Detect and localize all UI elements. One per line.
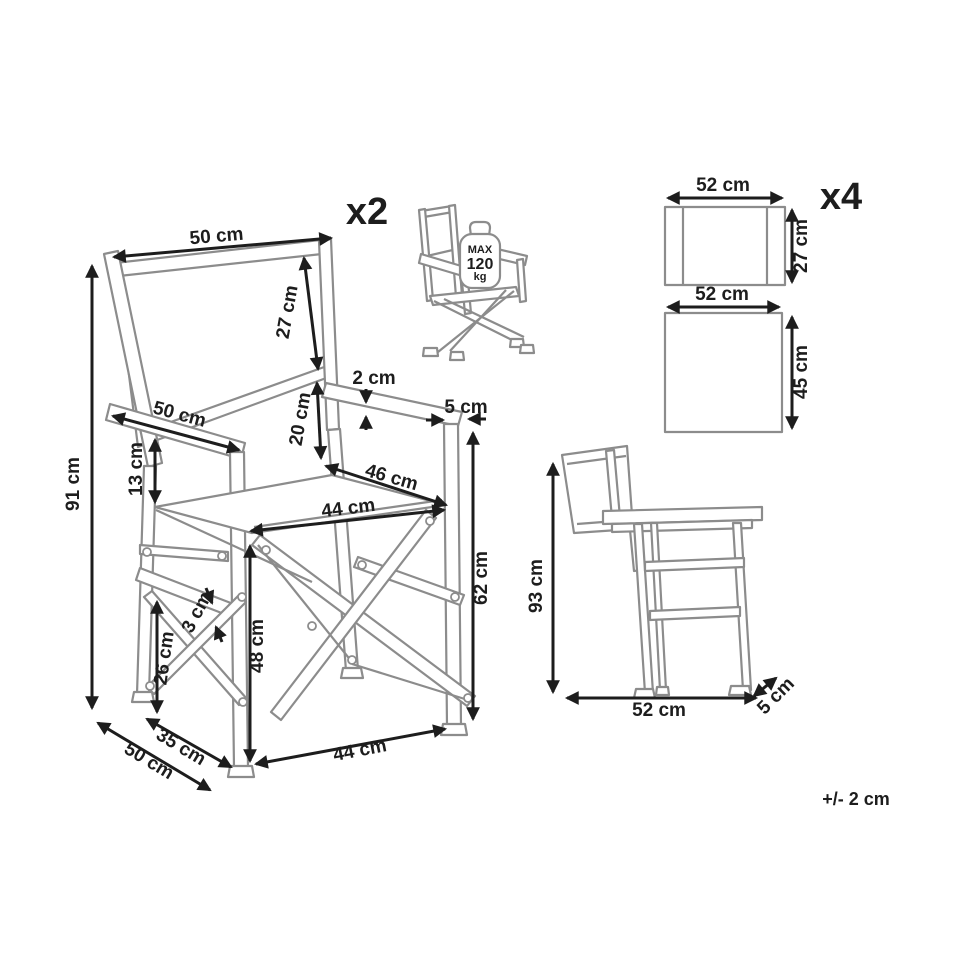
rivet-icon (348, 656, 356, 664)
dim-label: 52 cm (695, 284, 749, 305)
folded-foot (520, 345, 534, 353)
side-stretcher-lower (650, 607, 740, 620)
dim-front-leg-span: 44 cm (256, 729, 445, 766)
fabric-panels-drawing (665, 207, 785, 432)
dim-seat-height: 48 cm (247, 546, 268, 761)
side-front-foot-b (656, 687, 669, 695)
dim-label: 91 cm (63, 457, 84, 511)
max-load-label: MAX (468, 244, 493, 256)
dim-label: 27 cm (791, 219, 812, 273)
dim-seat-panel-width: 52 cm (668, 284, 779, 307)
rivet-icon (426, 517, 434, 525)
dim-side-frame-thickness: 5 cm (753, 673, 798, 718)
side-view-group: 93 cm 52 cm 5 cm (526, 446, 799, 721)
side-front-leg-a (634, 524, 653, 693)
dim-side-total-height: 93 cm (526, 464, 553, 692)
dim-label: 5 cm (444, 397, 487, 418)
chair-dimension-diagram: 50 cm 27 cm 2 cm 5 cm 20 cm 46 cm 44 cm (0, 0, 960, 960)
rivet-icon (451, 593, 459, 601)
dim-label: 2 cm (352, 368, 395, 389)
dim-label: 48 cm (247, 619, 268, 673)
side-rear-foot (729, 686, 751, 695)
dim-armrest-floor-height: 62 cm (471, 433, 492, 719)
folded-cross-strut (444, 299, 524, 337)
side-view-chair-drawing (562, 446, 762, 698)
fabric-panels-quantity: x4 (820, 176, 862, 218)
dim-total-height: 91 cm (63, 266, 92, 708)
folded-foot (423, 348, 438, 356)
dim-backrest-to-seat: 20 cm (286, 383, 321, 458)
dim-label: 93 cm (526, 559, 547, 613)
rivet-icon (358, 561, 366, 569)
front-cross-strut-2 (271, 510, 436, 720)
side-front-leg-b (651, 523, 666, 690)
dim-label: 26 cm (150, 630, 178, 686)
rivet-icon (262, 546, 270, 554)
front-left-foot (228, 766, 254, 777)
rivet-icon (464, 694, 472, 702)
rivet-icon (143, 548, 151, 556)
dim-label: 45 cm (791, 345, 812, 399)
max-load-unit: kg (474, 271, 487, 283)
dim-label: 5 cm (753, 673, 798, 718)
tolerance-note: +/- 2 cm (822, 789, 890, 809)
dim-label: 52 cm (696, 175, 750, 196)
backrest-right-post (319, 239, 339, 430)
diagram-canvas: 50 cm 27 cm 2 cm 5 cm 20 cm 46 cm 44 cm (0, 0, 960, 960)
dim-side-total-depth: 52 cm (567, 698, 756, 721)
dim-seat-panel-height: 45 cm (791, 317, 812, 428)
folded-foot (450, 352, 464, 360)
dim-line (317, 383, 321, 458)
rivet-icon (218, 552, 226, 560)
rivet-icon (308, 622, 316, 630)
rivet-icon (239, 698, 247, 706)
dim-label: 44 cm (332, 735, 389, 766)
rivet-icon (238, 593, 246, 601)
front-view-quantity: x2 (346, 191, 388, 233)
dim-label: 62 cm (471, 551, 492, 605)
dim-backrest-panel-height: 27 cm (791, 210, 812, 282)
dim-backrest-panel-width: 52 cm (668, 175, 782, 198)
dim-label: 13 cm (126, 442, 147, 496)
dim-label: 20 cm (286, 391, 316, 448)
dim-label: 52 cm (632, 700, 686, 721)
seat-panel-rect (665, 313, 782, 432)
fabric-panels-group: 52 cm 27 cm 52 cm 45 cm x4 (665, 175, 862, 432)
rear-right-foot (341, 668, 363, 678)
rear-left-foot (132, 692, 154, 702)
